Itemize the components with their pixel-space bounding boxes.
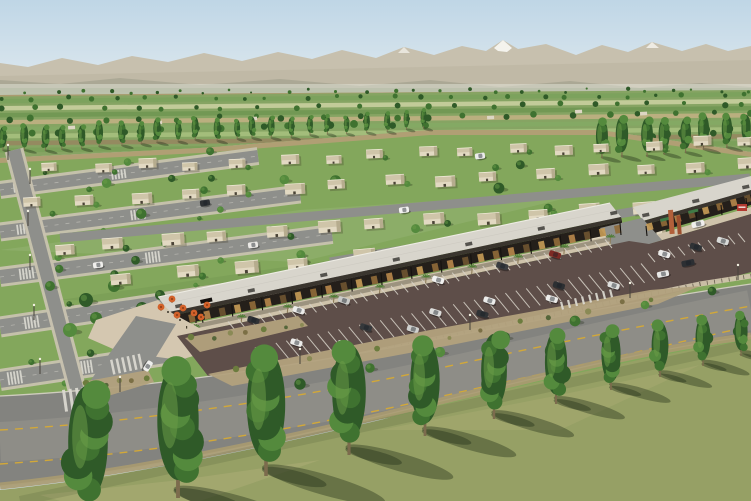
house — [423, 212, 446, 226]
farm-tree — [426, 103, 432, 109]
farm-tree — [214, 97, 218, 101]
shrub — [284, 325, 288, 329]
house — [102, 237, 125, 251]
farm-tree — [136, 116, 142, 122]
house — [510, 143, 529, 154]
farm-tree — [644, 100, 649, 105]
farm-tree — [723, 93, 727, 97]
farm-tree — [228, 89, 231, 92]
house — [267, 225, 290, 239]
farm-tree — [27, 115, 34, 122]
house — [477, 212, 502, 227]
aerial-rendering — [0, 0, 751, 501]
farm-tree — [202, 92, 204, 94]
farm-tree — [159, 107, 164, 112]
shrub — [307, 356, 312, 361]
farm-tree — [358, 94, 362, 98]
shrub — [374, 346, 380, 352]
farm-tree — [459, 113, 465, 119]
farm-tree — [635, 111, 640, 116]
farm-tree — [672, 89, 675, 92]
house — [285, 183, 308, 197]
farm-tree — [394, 115, 401, 122]
house — [41, 163, 59, 174]
shrub — [448, 336, 452, 340]
farm-tree — [557, 100, 563, 106]
farm-tree — [389, 122, 396, 129]
farm-tree — [218, 107, 223, 112]
house — [235, 260, 262, 276]
farm-tree — [103, 117, 109, 123]
house — [637, 165, 657, 177]
farm-tree — [32, 104, 38, 110]
house — [138, 158, 158, 170]
farm-tree — [294, 105, 300, 111]
farm-tree — [357, 104, 362, 109]
farm-tree — [81, 89, 85, 93]
house — [177, 264, 202, 279]
rendering-canvas — [0, 0, 751, 501]
farm-tree — [483, 96, 487, 100]
farm-tree — [626, 96, 630, 100]
house — [110, 273, 133, 287]
house — [593, 144, 611, 155]
farm-tree — [278, 115, 285, 122]
farm-tree — [179, 89, 182, 92]
shrub — [546, 315, 551, 320]
farm-tree — [6, 117, 13, 124]
farm-tree — [747, 90, 750, 93]
farm-tree — [255, 105, 259, 109]
house — [385, 174, 406, 187]
farm-tree — [307, 88, 310, 91]
farm-tree — [593, 101, 599, 107]
house — [364, 218, 386, 231]
house — [457, 148, 475, 159]
house — [686, 162, 707, 175]
house — [55, 244, 77, 257]
farm-tree — [739, 102, 744, 107]
farm-tree — [607, 111, 614, 118]
house — [366, 149, 385, 160]
farm-tree — [23, 91, 26, 94]
farm-building — [487, 116, 494, 120]
farm-building — [68, 126, 75, 130]
farm-tree — [137, 106, 142, 111]
farm-tree — [438, 89, 441, 92]
shrub — [188, 334, 194, 340]
farm-tree — [102, 105, 107, 110]
farm-tree — [494, 90, 498, 94]
farm-tree — [358, 113, 364, 119]
house — [435, 176, 458, 190]
farm-tree — [130, 92, 133, 95]
shrub — [620, 299, 625, 304]
farm-tree — [468, 87, 472, 91]
farm-tree — [543, 94, 548, 99]
farm-tree — [678, 92, 683, 97]
farm-tree — [504, 114, 510, 120]
shrub — [228, 330, 233, 335]
shrub — [585, 308, 591, 314]
farm-tree — [395, 103, 401, 109]
house — [227, 185, 248, 198]
shrub — [478, 328, 482, 332]
house — [281, 154, 301, 166]
farm-tree — [505, 94, 510, 99]
house — [23, 197, 43, 209]
farm-tree — [57, 104, 63, 110]
table — [167, 311, 169, 313]
farm-tree — [690, 88, 692, 90]
farm-tree — [393, 94, 398, 99]
farm-tree — [29, 130, 36, 137]
farm-tree — [492, 104, 497, 109]
house — [182, 162, 200, 173]
farm-tree — [89, 96, 94, 101]
shrub — [212, 336, 217, 341]
farm-tree — [67, 118, 73, 124]
farm-tree — [261, 123, 267, 129]
farm-tree — [412, 89, 415, 92]
house — [132, 193, 155, 207]
farm-tree — [452, 103, 457, 108]
farm-tree — [174, 95, 178, 99]
house — [229, 159, 248, 170]
farm-tree — [194, 105, 198, 109]
farm-tree — [66, 94, 71, 99]
shrub — [300, 323, 304, 327]
shrub — [261, 326, 267, 332]
farm-tree — [712, 110, 717, 115]
house — [419, 146, 439, 158]
house — [318, 220, 343, 235]
farm-tree — [673, 110, 679, 116]
farm-tree — [306, 96, 311, 101]
house — [536, 168, 557, 181]
farm-tree — [722, 102, 728, 108]
table — [179, 319, 181, 321]
farm-tree — [28, 97, 33, 102]
house — [207, 231, 229, 244]
farm-tree — [597, 95, 601, 99]
farm-tree — [654, 94, 657, 97]
house — [555, 145, 575, 157]
house — [326, 155, 344, 166]
shrub — [144, 375, 150, 381]
farm-tree — [288, 90, 292, 94]
farm-tree — [418, 94, 423, 99]
shrub — [233, 366, 239, 372]
farm-tree — [316, 103, 321, 108]
farm-tree — [643, 90, 646, 93]
farm-tree — [243, 97, 247, 101]
farm-tree — [562, 95, 567, 100]
shrub — [129, 378, 134, 383]
farm-tree — [394, 89, 398, 93]
house — [95, 163, 114, 174]
farm-tree — [57, 90, 61, 94]
farm-tree — [350, 120, 358, 128]
farm-tree — [335, 94, 339, 98]
farm-tree — [156, 91, 159, 94]
house — [693, 136, 713, 148]
farm-tree — [520, 90, 524, 94]
house — [162, 233, 187, 248]
farm-tree — [586, 87, 588, 89]
farm-tree — [250, 91, 252, 93]
farm-tree — [742, 92, 747, 97]
farm-building — [640, 112, 647, 116]
sign-text-band — [739, 207, 746, 208]
shrub — [649, 298, 653, 302]
farm-tree — [263, 97, 266, 100]
shrub — [518, 318, 523, 323]
farm-tree — [538, 90, 541, 93]
table — [203, 314, 205, 316]
farm-tree — [615, 101, 620, 106]
house — [588, 164, 611, 178]
farm-building — [575, 110, 582, 114]
house — [182, 189, 202, 201]
shrub — [117, 378, 122, 383]
house — [479, 172, 499, 184]
farm-tree — [115, 96, 119, 100]
farm-tree — [564, 91, 567, 94]
house — [327, 179, 347, 191]
farm-tree — [682, 101, 686, 105]
farm-tree — [449, 95, 453, 99]
farm-tree — [530, 111, 537, 118]
house — [646, 142, 665, 153]
farm-tree — [334, 90, 337, 93]
farm-tree — [110, 89, 114, 93]
house — [75, 195, 96, 208]
person — [186, 326, 187, 329]
farm-tree — [142, 95, 147, 100]
farm-tree — [520, 101, 526, 107]
table — [195, 321, 197, 323]
farm-tree — [365, 90, 369, 94]
farm-tree — [626, 87, 630, 91]
shrub — [243, 330, 248, 335]
farm-tree — [720, 90, 723, 93]
